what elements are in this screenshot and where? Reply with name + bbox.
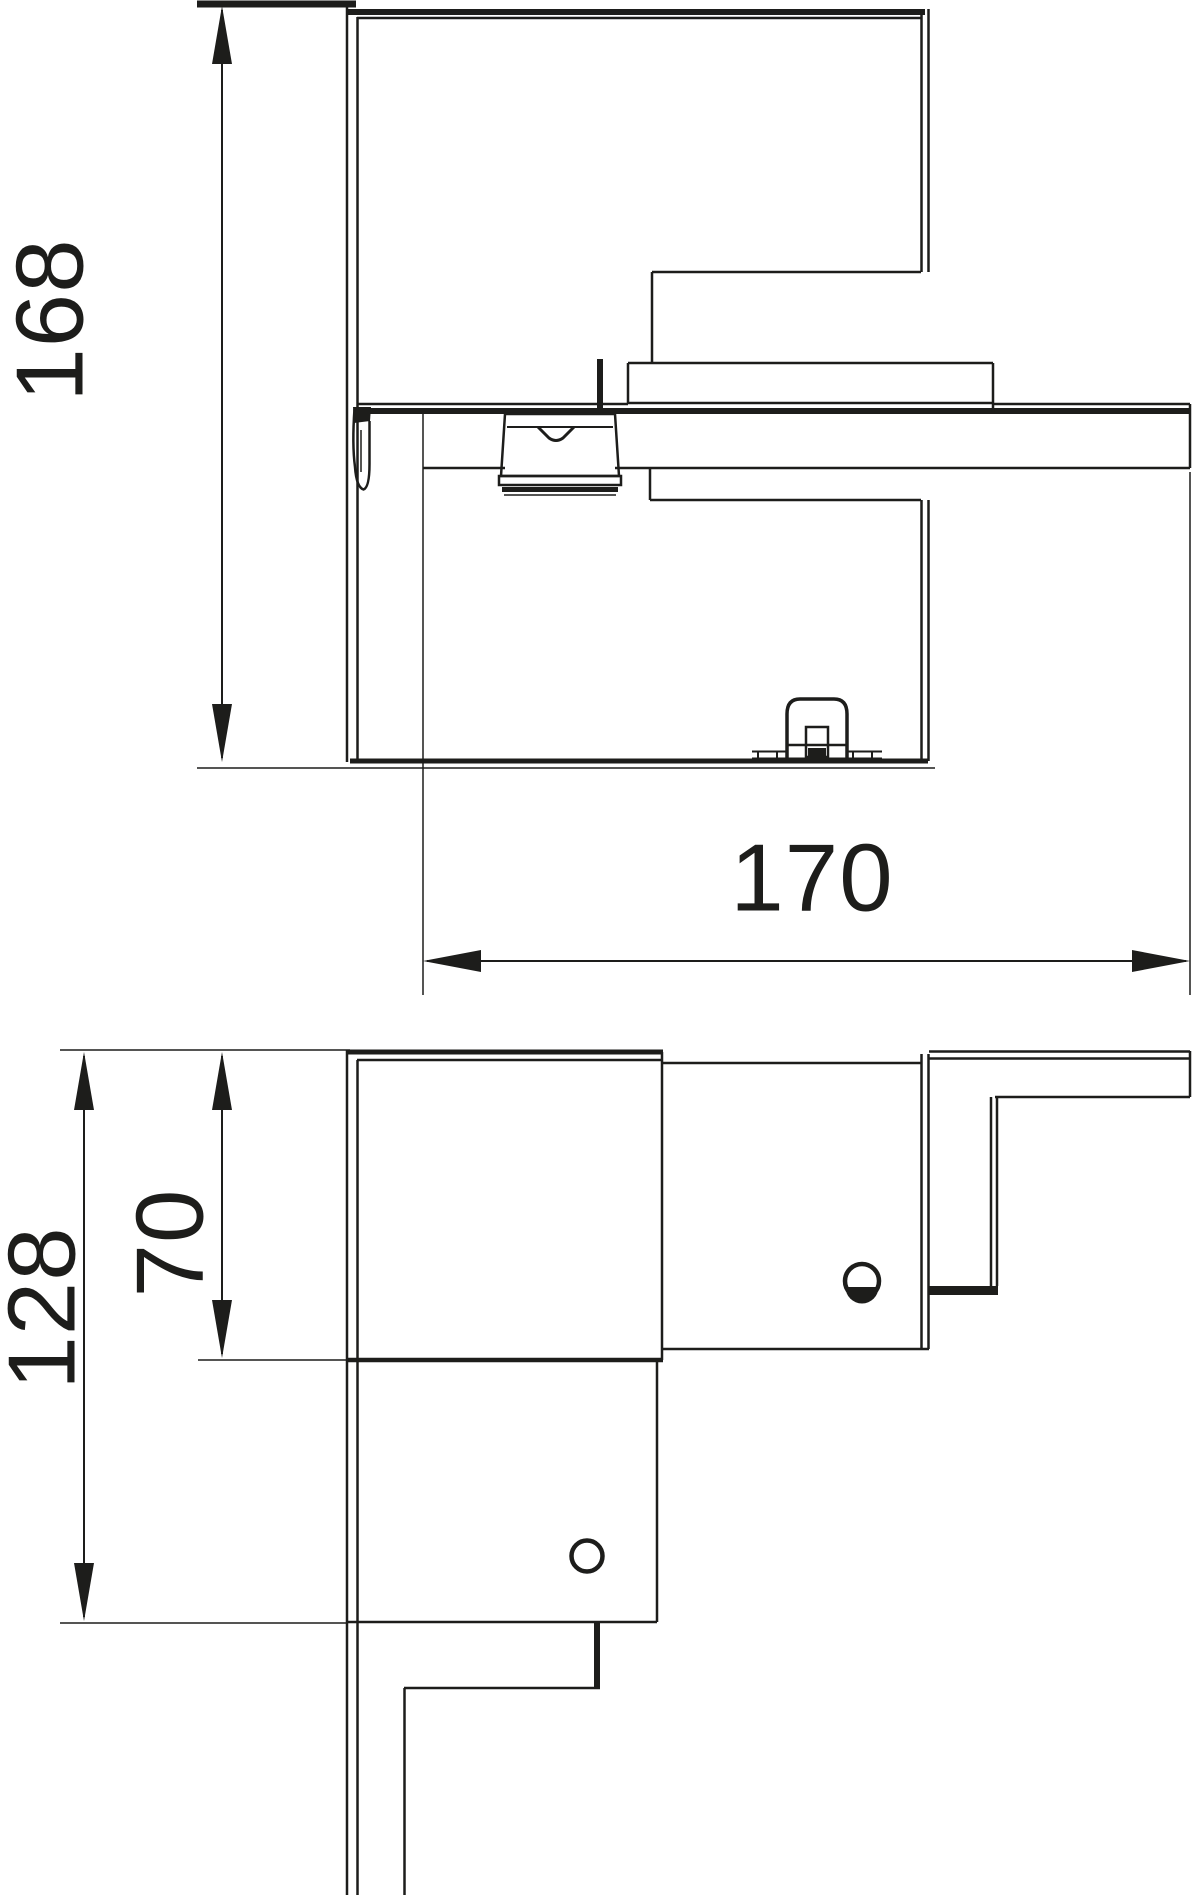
bottom-view: 128 70 — [0, 1050, 1190, 1895]
clip-body — [501, 414, 619, 476]
dimension-168: 168 — [0, 6, 232, 762]
top-view: 168 170 — [0, 4, 1190, 995]
retaining-clip — [499, 414, 621, 495]
arrowhead-down-icon — [74, 1563, 94, 1621]
dimension-label: 70 — [117, 1189, 224, 1298]
screw-hole-lower — [572, 1541, 603, 1572]
part-outline — [346, 1050, 1190, 1895]
arrowhead-right-icon — [1132, 950, 1190, 972]
arrowhead-up-icon — [212, 1052, 232, 1110]
dimension-70: 70 — [117, 1052, 233, 1358]
clip-base — [499, 476, 621, 485]
dimension-label: 168 — [0, 238, 104, 401]
arrowhead-up-icon — [74, 1052, 94, 1110]
part-outline-heavy — [346, 1052, 998, 1689]
dimension-label: 128 — [0, 1226, 96, 1389]
dimension-label: 170 — [730, 825, 893, 932]
hole-shading — [846, 1287, 879, 1304]
arrowhead-left-icon — [423, 950, 481, 972]
technical-drawing: 168 170 — [0, 0, 1200, 1895]
hole-ring — [572, 1541, 603, 1572]
dimension-128: 128 — [0, 1052, 96, 1621]
drawing-canvas: 168 170 — [0, 0, 1200, 1895]
clip-notch — [538, 427, 574, 441]
arrowhead-down-icon — [212, 704, 232, 762]
arm-foot — [929, 1286, 998, 1295]
arrowhead-down-icon — [212, 1300, 232, 1358]
screw-hole-upper — [845, 1264, 879, 1304]
arrowhead-up-icon — [212, 6, 232, 64]
extension-lines — [60, 1050, 350, 1623]
dimension-170: 170 — [423, 825, 1190, 973]
part-outline — [347, 7, 1190, 762]
mounting-clip — [752, 699, 882, 760]
wall-spring-tab — [353, 407, 371, 490]
